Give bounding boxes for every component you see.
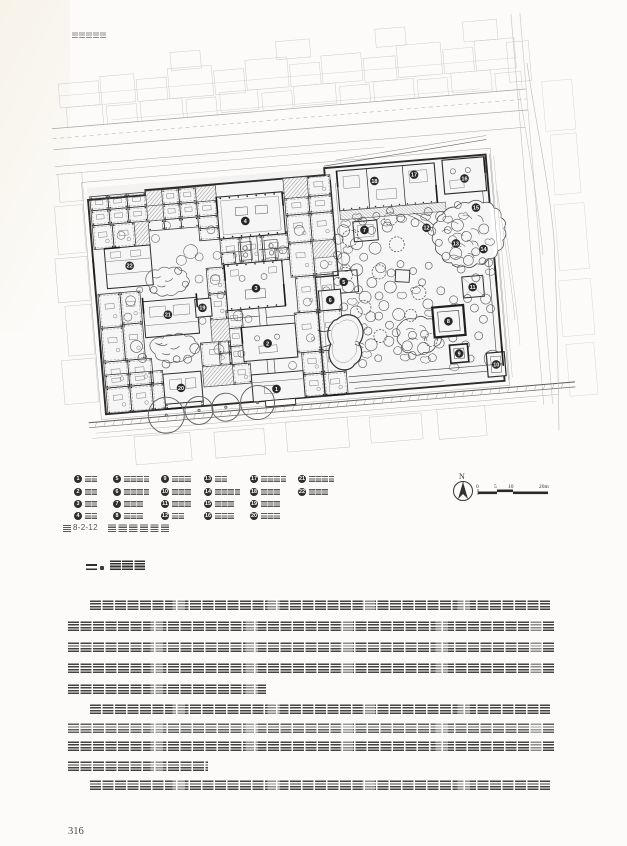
svg-text:16: 16 xyxy=(462,176,468,182)
svg-text:6: 6 xyxy=(329,298,332,304)
svg-text:0: 0 xyxy=(476,484,479,490)
svg-text:11: 11 xyxy=(470,285,476,291)
svg-text:21: 21 xyxy=(165,313,171,319)
svg-text:3: 3 xyxy=(254,286,257,292)
svg-text:12: 12 xyxy=(424,226,430,232)
svg-text:20m: 20m xyxy=(539,484,550,490)
svg-text:20: 20 xyxy=(178,386,184,392)
svg-text:15: 15 xyxy=(473,205,479,211)
svg-text:8: 8 xyxy=(447,319,450,325)
svg-text:10: 10 xyxy=(493,362,499,368)
svg-text:2: 2 xyxy=(266,341,269,347)
svg-text:18: 18 xyxy=(371,179,377,185)
svg-text:N: N xyxy=(459,472,465,481)
svg-text:5: 5 xyxy=(494,484,497,490)
svg-text:4: 4 xyxy=(244,219,247,225)
svg-text:5: 5 xyxy=(342,280,345,286)
svg-text:1: 1 xyxy=(275,387,278,393)
svg-text:10: 10 xyxy=(508,484,514,490)
svg-text:7: 7 xyxy=(363,228,366,234)
svg-text:19: 19 xyxy=(199,306,205,312)
svg-text:9: 9 xyxy=(458,351,461,357)
svg-text:22: 22 xyxy=(127,264,133,270)
svg-text:13: 13 xyxy=(453,241,459,247)
svg-text:17: 17 xyxy=(411,173,417,179)
svg-text:14: 14 xyxy=(480,247,486,253)
